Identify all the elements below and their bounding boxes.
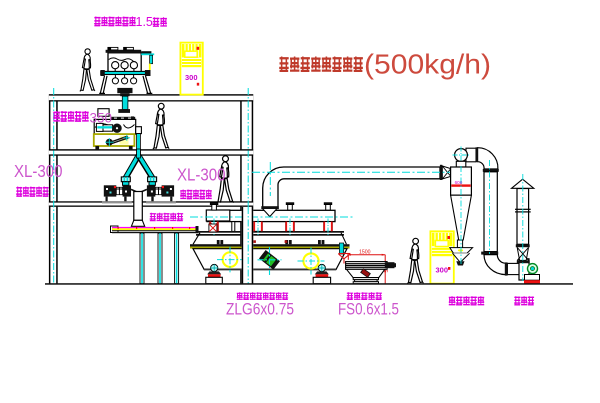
svg-text:FS0.6x1.5: FS0.6x1.5 [338, 301, 399, 319]
svg-text:XL-300: XL-300 [177, 164, 226, 184]
svg-text:XL-300: XL-300 [14, 161, 63, 181]
svg-text:600: 600 [455, 180, 463, 185]
svg-text:1500: 1500 [359, 249, 371, 255]
svg-text:1.5: 1.5 [136, 15, 153, 29]
svg-text:ZLG6x0.75: ZLG6x0.75 [226, 301, 294, 319]
svg-text:(500kg/h): (500kg/h) [364, 49, 491, 80]
svg-text:300: 300 [185, 73, 198, 82]
svg-text:300: 300 [436, 266, 449, 275]
svg-text:350: 350 [90, 111, 113, 126]
